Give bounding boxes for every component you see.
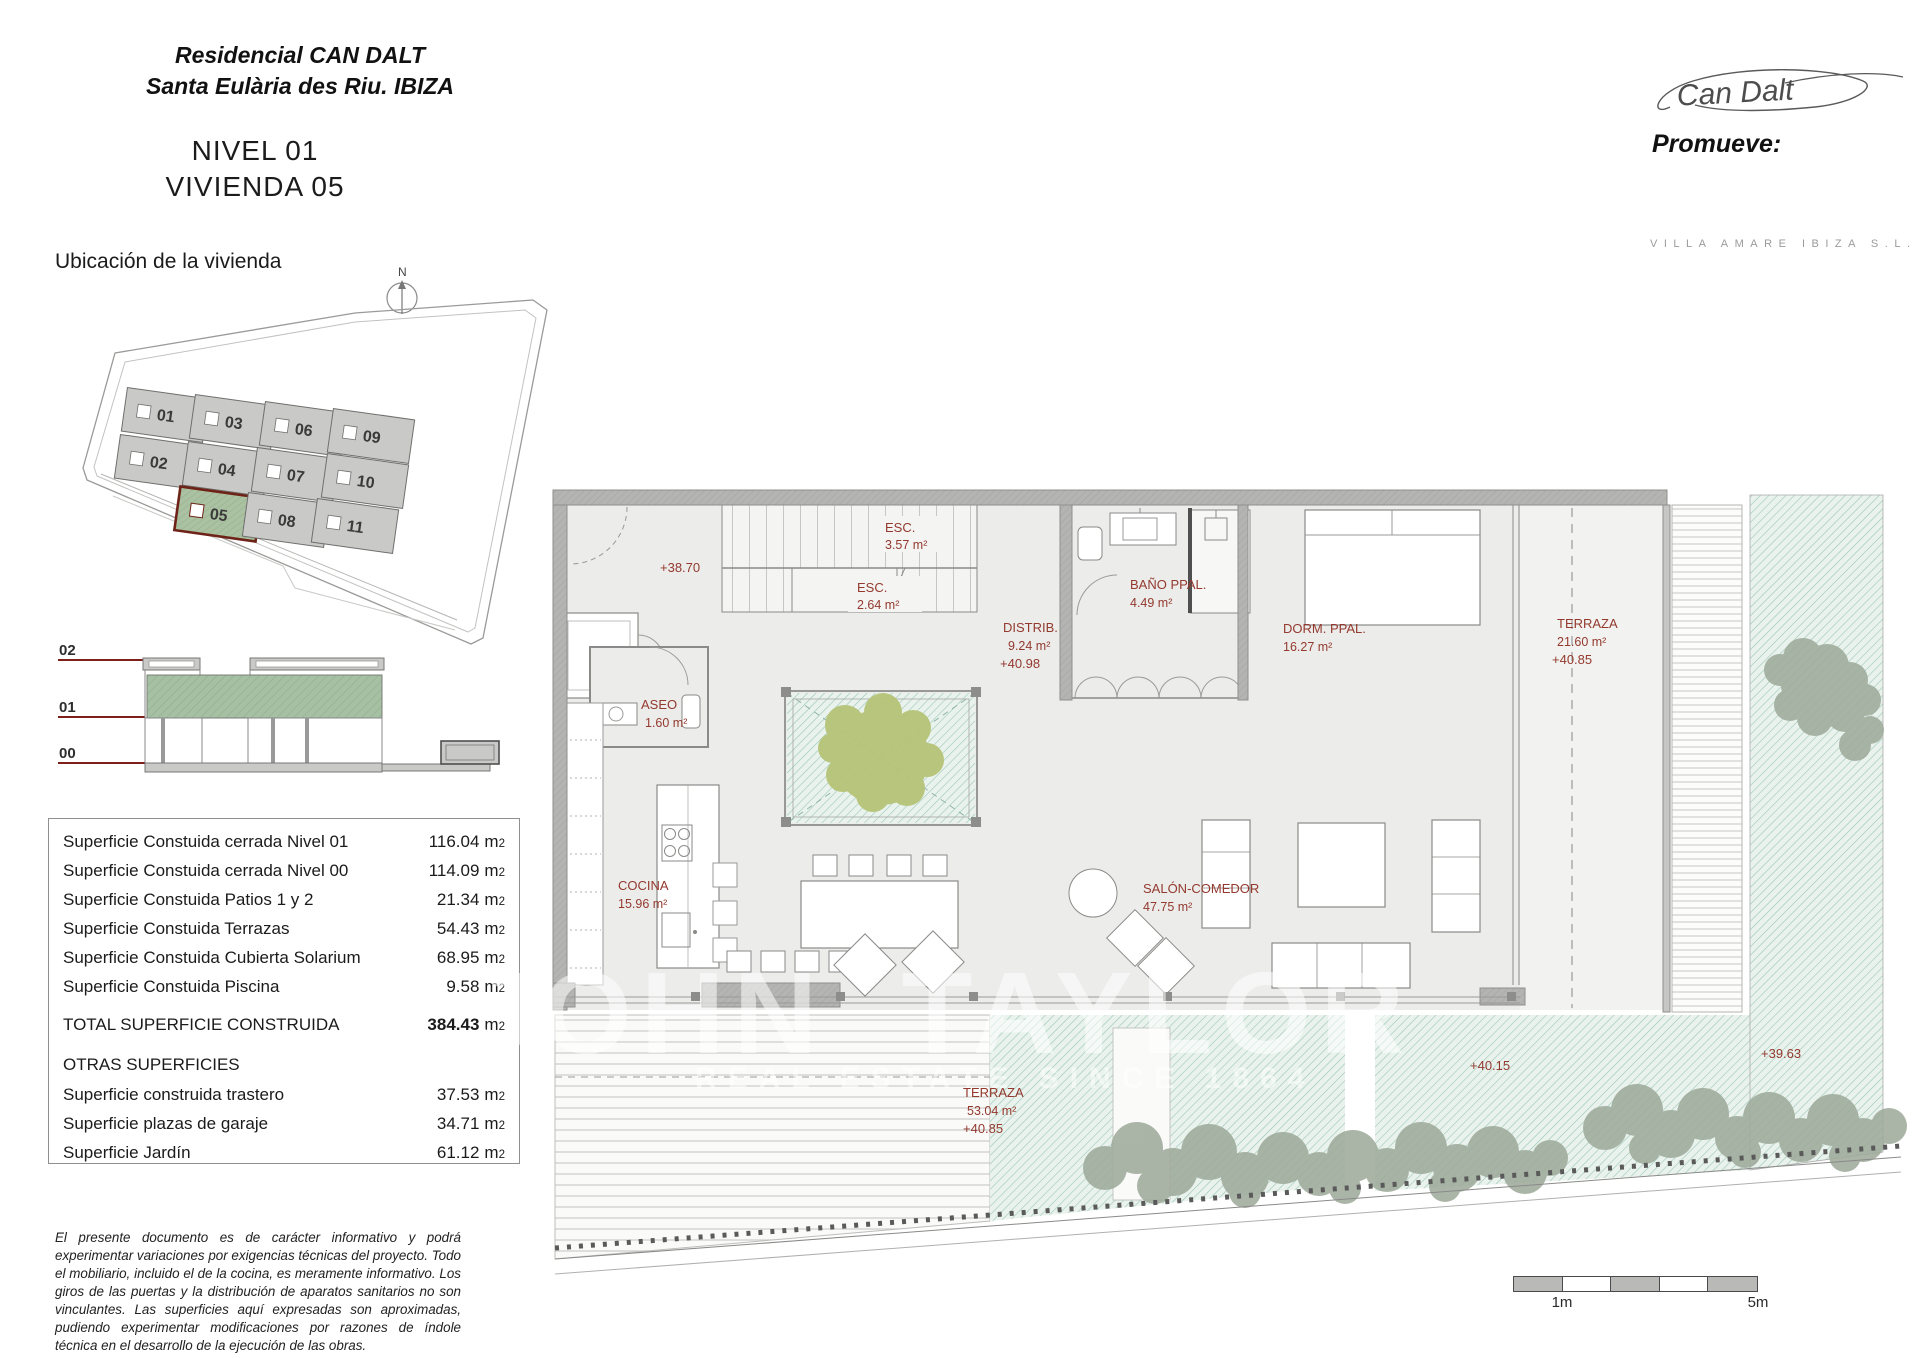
table-row: Superficie Constuida Terrazas 54.43m2 <box>63 914 505 943</box>
svg-text:08: 08 <box>277 512 297 531</box>
table-row: Superficie Constuida Piscina 9.58m2 <box>63 972 505 1001</box>
row-value: 68.95m2 <box>437 943 505 975</box>
site-buildings: 01 03 06 09 02 <box>114 388 414 554</box>
level-label-distrib: +40.98 <box>1000 656 1040 671</box>
row-value: 9.58m2 <box>446 972 505 1004</box>
scale-segment <box>1660 1277 1709 1291</box>
site-plan: N 01 03 <box>55 258 555 658</box>
level-title: NIVEL 01 <box>105 133 405 169</box>
row-label: Superficie Constuida cerrada Nivel 01 <box>63 827 348 856</box>
section-level-00: 00 <box>59 745 76 762</box>
room-label-cocina: COCINA <box>618 878 669 893</box>
room-label-aseo: ASEO <box>641 697 677 712</box>
sheet-title: NIVEL 01 VIVIENDA 05 <box>105 133 405 205</box>
row-value: 61.12m2 <box>437 1138 505 1170</box>
table-total-row: TOTAL SUPERFICIE CONSTRUIDA 384.43m2 <box>63 1010 505 1039</box>
row-value: 21.34m2 <box>437 885 505 917</box>
sofa-left <box>1202 820 1250 928</box>
svg-text:03: 03 <box>224 414 244 433</box>
room-label-banyo: BAÑO PPAL. <box>1130 577 1206 592</box>
louvre-band <box>1672 505 1742 1012</box>
promoter-label: Promueve: <box>1652 130 1781 159</box>
coffee-table <box>1298 823 1385 907</box>
scale-bar-strip <box>1513 1276 1758 1292</box>
room-area-cocina: 15.96 m² <box>618 897 667 911</box>
scale-segment <box>1611 1277 1660 1291</box>
room-label-salon: SALÓN-COMEDOR <box>1143 881 1259 896</box>
table-section-header: OTRAS SUPERFICIES <box>63 1050 505 1080</box>
scale-label-1m: 1m <box>1542 1294 1582 1311</box>
site-unit-11: 11 <box>311 499 398 554</box>
section-level-01: 01 <box>59 699 76 716</box>
sofa-right <box>1432 820 1480 932</box>
scale-segment <box>1514 1277 1563 1291</box>
side-garden-strip <box>1750 495 1883 1170</box>
scale-segment <box>1708 1277 1757 1291</box>
svg-text:11: 11 <box>346 518 365 537</box>
table-row: Superficie construida trastero 37.53m2 <box>63 1080 505 1109</box>
row-value: 116.04m2 <box>429 827 505 859</box>
room-area-esc1: 3.57 m² <box>885 538 927 552</box>
table-row: Superficie Constuida Cubierta Solarium 6… <box>63 943 505 972</box>
total-label: TOTAL SUPERFICIE CONSTRUIDA <box>63 1010 339 1039</box>
toilet <box>1078 527 1102 560</box>
table-row: Superficie Constuida Patios 1 y 2 21.34m… <box>63 885 505 914</box>
room-label-terraza2: TERRAZA <box>963 1085 1024 1100</box>
section-building <box>143 658 499 772</box>
section-level-02: 02 <box>59 642 76 659</box>
row-label: Superficie Constuida cerrada Nivel 00 <box>63 856 348 885</box>
svg-text:01: 01 <box>156 407 176 426</box>
room-area-terraza1: 21.60 m² <box>1557 635 1606 649</box>
room-label-dorm: DORM. PPAL. <box>1283 621 1366 636</box>
room-label-esc1: ESC. <box>885 520 915 535</box>
floor-plan: ESC. 3.57 m² +38.70 ESC. 2.64 m² DISTRIB… <box>545 480 1920 1310</box>
room-area-salon: 47.75 m² <box>1143 900 1192 914</box>
room-area-aseo: 1.60 m² <box>645 716 687 730</box>
row-label: Superficie Jardín <box>63 1138 191 1167</box>
north-label: N <box>398 265 407 279</box>
table-row: Superficie Jardín 61.12m2 <box>63 1138 505 1167</box>
table-row: Superficie Constuida cerrada Nivel 01 11… <box>63 827 505 856</box>
plan-sheet: Residencial CAN DALT Santa Eulària des R… <box>0 0 1920 1358</box>
project-title-line1: Residencial CAN DALT <box>95 40 505 71</box>
north-arrow: N <box>387 265 417 314</box>
row-value: 114.09m2 <box>429 856 505 888</box>
section-level-labels: 02 01 00 <box>58 642 145 763</box>
room-label-esc2: ESC. <box>857 580 887 595</box>
level-label-3870: +38.70 <box>660 560 700 575</box>
room-area-dorm: 16.27 m² <box>1283 640 1332 654</box>
svg-text:09: 09 <box>362 428 382 447</box>
room-area-esc2: 2.64 m² <box>857 598 899 612</box>
row-label: Superficie Constuida Patios 1 y 2 <box>63 885 313 914</box>
disclaimer-text: El presente documento es de carácter inf… <box>55 1229 461 1355</box>
room-area-terraza2: 53.04 m² <box>967 1104 1016 1118</box>
room-label-terraza1: TERRAZA <box>1557 616 1618 631</box>
pergola-deck <box>555 1015 990 1259</box>
room-area-distrib: 9.24 m² <box>1008 639 1050 653</box>
signature-text: Can Dalt <box>1676 73 1796 112</box>
level-label-terraza1: +40.85 <box>1552 652 1592 667</box>
section-level01-highlight <box>147 675 382 718</box>
room-area-banyo: 4.49 m² <box>1130 596 1172 610</box>
scale-segment <box>1563 1277 1612 1291</box>
scale-label-5m: 5m <box>1738 1294 1778 1311</box>
sofa-bottom <box>1272 943 1410 988</box>
row-value: 37.53m2 <box>437 1080 505 1112</box>
project-title: Residencial CAN DALT Santa Eulària des R… <box>95 40 505 102</box>
row-label: Superficie construida trastero <box>63 1080 284 1109</box>
project-title-line2: Santa Eulària des Riu. IBIZA <box>95 71 505 102</box>
row-label: Superficie Constuida Cubierta Solarium <box>63 943 361 972</box>
svg-text:04: 04 <box>217 461 237 480</box>
promoter-name: VILLA AMARE IBIZA S.L. <box>1650 238 1917 250</box>
level-label-3963: +39.63 <box>1761 1046 1801 1061</box>
signature-flourish: Can Dalt <box>1615 55 1915 130</box>
table-row: Superficie plazas de garaje 34.71m2 <box>63 1109 505 1138</box>
svg-text:10: 10 <box>356 473 376 492</box>
terrace-deck <box>1520 505 1663 1010</box>
svg-text:02: 02 <box>149 454 169 473</box>
pouf <box>1069 869 1117 917</box>
row-value: 34.71m2 <box>437 1109 505 1141</box>
room-label-distrib: DISTRIB. <box>1003 620 1058 635</box>
courtyard-patio <box>781 687 981 827</box>
row-label: Superficie Constuida Terrazas <box>63 914 289 943</box>
row-label: Superficie Constuida Piscina <box>63 972 279 1001</box>
brand-signature: Can Dalt <box>1615 55 1915 130</box>
svg-text:07: 07 <box>286 467 306 486</box>
total-value: 384.43m2 <box>427 1010 505 1042</box>
table-row: Superficie Constuida cerrada Nivel 00 11… <box>63 856 505 885</box>
stairs <box>722 504 977 612</box>
row-value: 54.43m2 <box>437 914 505 946</box>
dwelling-title: VIVIENDA 05 <box>105 169 405 205</box>
scale-bar: 1m 5m <box>1513 1276 1758 1316</box>
row-label: Superficie plazas de garaje <box>63 1109 268 1138</box>
svg-text:05: 05 <box>209 506 229 525</box>
svg-text:06: 06 <box>294 421 314 440</box>
areas-table: Superficie Constuida cerrada Nivel 01 11… <box>48 818 520 1164</box>
signature-tail <box>1785 74 1903 83</box>
level-label-terraza2: +40.85 <box>963 1121 1003 1136</box>
section-diagram: 02 01 00 <box>45 635 525 805</box>
level-label-4015: +40.15 <box>1470 1058 1510 1073</box>
